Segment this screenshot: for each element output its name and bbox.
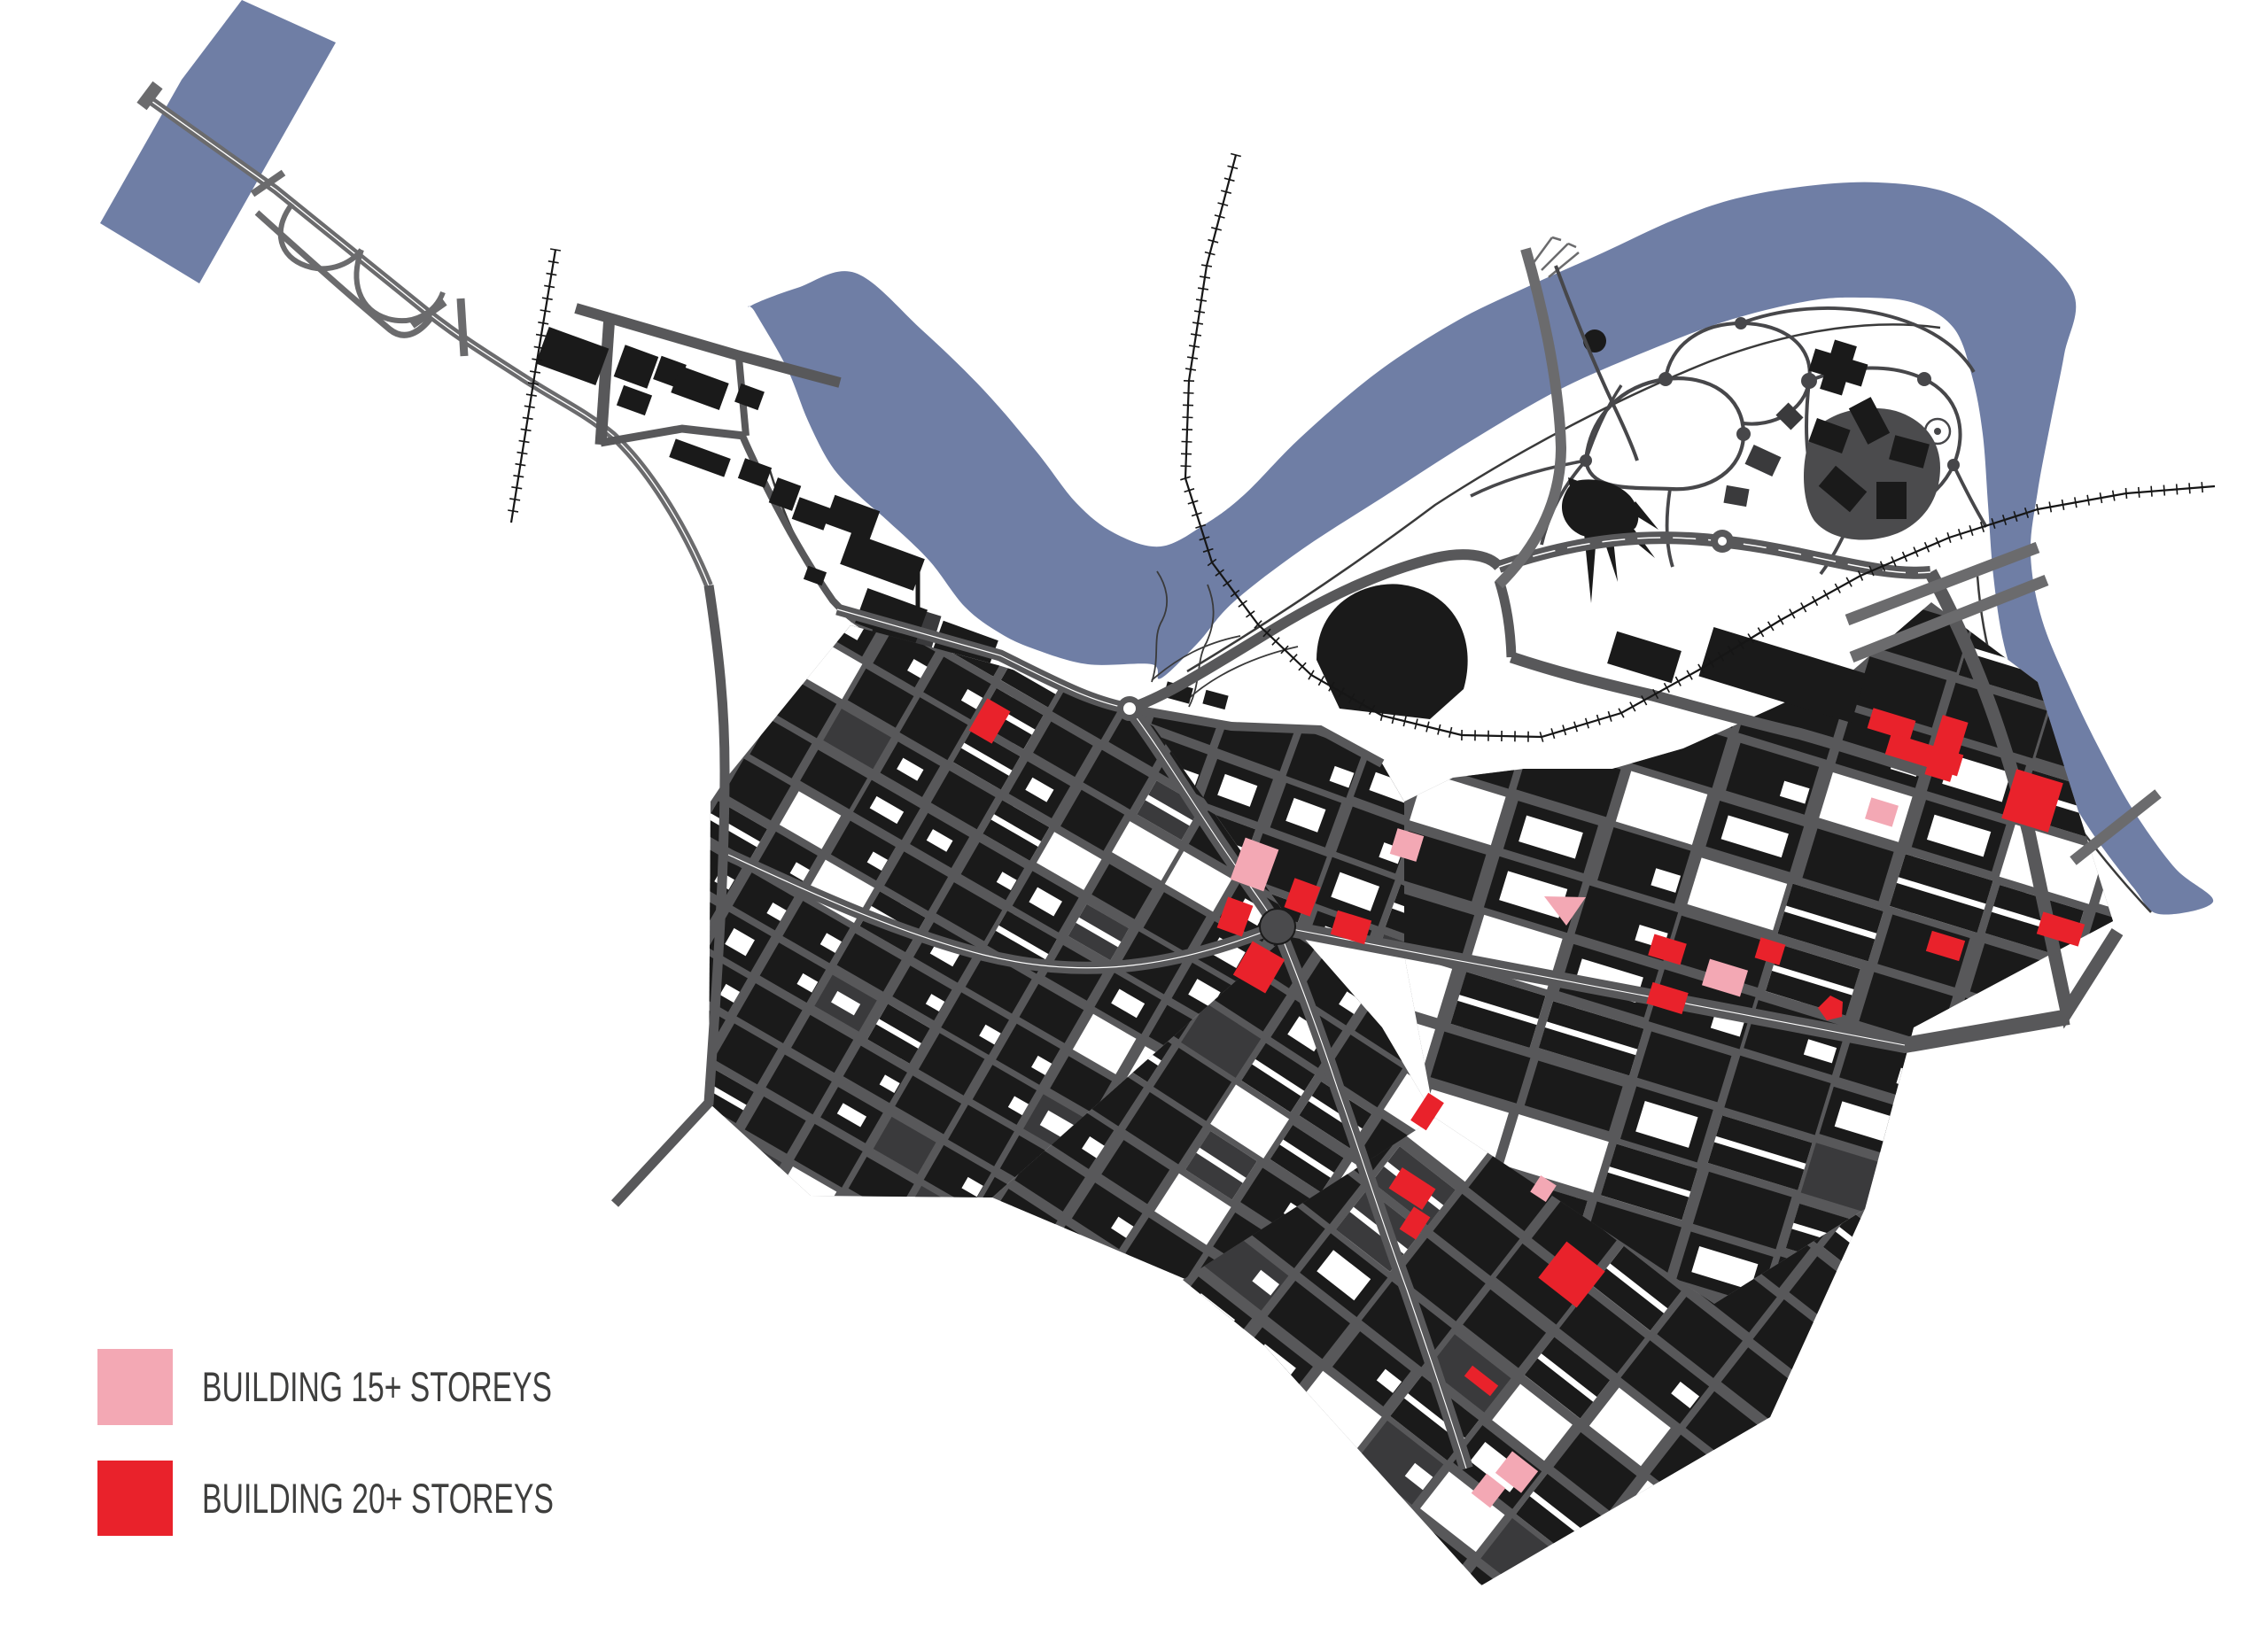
- svg-text:BUILDING 15+ STOREYS: BUILDING 15+ STOREYS: [202, 1363, 552, 1410]
- svg-text:BUILDING 20+ STOREYS: BUILDING 20+ STOREYS: [202, 1475, 554, 1522]
